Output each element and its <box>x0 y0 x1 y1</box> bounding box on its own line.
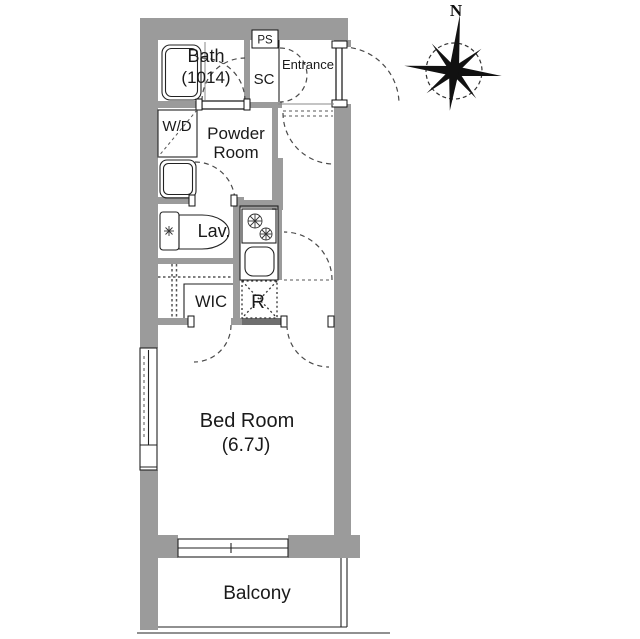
lav-door-jamb-left <box>189 195 195 206</box>
hall-door <box>278 104 334 164</box>
balcony-label: Balcony <box>223 583 291 604</box>
compass-star <box>400 9 508 116</box>
compass-north-label: N <box>450 1 463 20</box>
bedroom-balcony-window <box>178 539 288 557</box>
wall-left-lower <box>140 470 158 630</box>
bath-bottom-wall <box>158 101 202 108</box>
toilet-valve-icon <box>164 226 174 236</box>
bedroom-door-jamb-3 <box>328 316 334 327</box>
entrance-label: Entrance <box>282 57 334 72</box>
floor-plan-svg: N Bath (1014) PS SC Entrance W/D Powder … <box>0 0 640 639</box>
bedroom-side-window <box>140 348 157 470</box>
wic-right-wall <box>233 264 240 318</box>
kitchen-sink <box>245 247 274 276</box>
entrance-door-swing-arc <box>342 47 399 104</box>
wall-right-main <box>334 104 351 540</box>
kitchen-door-swing-arc <box>284 232 332 280</box>
hall-door-swing-arc <box>283 113 334 164</box>
lav-kitchen-divider <box>233 204 240 262</box>
bath-door-jamb-left <box>196 99 202 110</box>
counter-base-hatch <box>242 318 281 325</box>
powder-room-label-1: Powder <box>207 124 265 143</box>
entrance-door-jamb-bottom <box>332 100 347 107</box>
entrance-door <box>332 41 399 107</box>
lav-door-jamb-right <box>231 195 237 206</box>
wall-bottom-left-seg <box>158 535 178 558</box>
bedroom-size-label: (6.7J) <box>222 435 271 456</box>
bedroom-door-jamb-2 <box>281 316 287 327</box>
entrance-door-jamb-top <box>332 41 347 48</box>
bath-door-leaf <box>202 101 245 109</box>
wall-bottom-right-seg <box>288 535 360 558</box>
stove-burner-icon <box>248 214 272 240</box>
washbasin-inner <box>164 164 193 195</box>
washbasin <box>160 160 196 198</box>
bedroom-label: Bed Room <box>200 410 295 432</box>
wall-top <box>140 18 348 40</box>
compass-rose: N <box>400 1 508 116</box>
bath-size-label: (1014) <box>181 68 230 87</box>
ps-label: PS <box>257 35 273 47</box>
powder-room-label-2: Room <box>213 143 258 162</box>
wall-left-upper <box>140 40 158 348</box>
refrigerator-label: R <box>251 292 265 313</box>
bedroom-top-wall-a <box>158 318 188 325</box>
wic-label: WIC <box>195 293 227 311</box>
kitchen <box>240 206 332 280</box>
wic-door-swing-arc <box>194 325 231 362</box>
bedroom-door-swing-arc <box>287 325 329 367</box>
bedroom-door-jamb-1 <box>188 316 194 327</box>
lav-wic-wall <box>158 258 240 264</box>
bath-label: Bath <box>187 46 224 66</box>
lav-door-swing-arc <box>195 162 235 202</box>
washbasin-outer <box>160 160 196 198</box>
entrance-door-leaf <box>336 47 342 101</box>
lavatory-label: Lav. <box>198 221 231 241</box>
bath-door-jamb-right <box>244 99 250 110</box>
floor-plan: N Bath (1014) PS SC Entrance W/D Powder … <box>0 0 640 639</box>
washer-dryer-label: W/D <box>162 118 191 135</box>
sc-label: SC <box>254 71 275 88</box>
kitchen-right-wall <box>278 208 282 280</box>
kitchen-top-wall <box>240 200 283 208</box>
